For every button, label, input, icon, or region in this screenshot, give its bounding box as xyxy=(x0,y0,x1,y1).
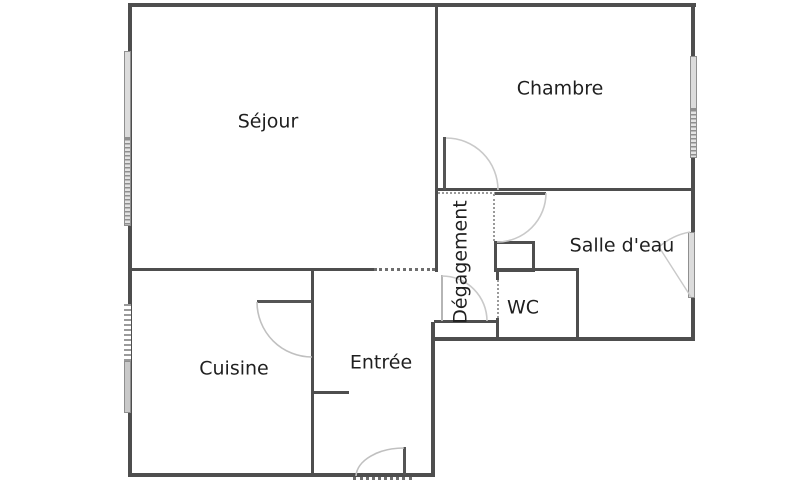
sejour-window-lower xyxy=(124,138,131,226)
sejour-cuisine-wall xyxy=(128,268,375,271)
sejour-chambre-wall xyxy=(435,3,438,272)
cuisine-door-arc xyxy=(257,302,312,357)
sejour-label: Séjour xyxy=(238,113,299,132)
cuisine-door-leaf xyxy=(257,300,312,303)
top-wall xyxy=(130,3,696,7)
degagement-label: Dégagement xyxy=(452,200,471,323)
entree-right-wall xyxy=(431,322,435,477)
entree-stub-wall xyxy=(311,391,349,394)
wc-label: WC xyxy=(507,299,539,318)
wc-left-wall-bottom xyxy=(496,318,499,340)
wc-door-opening xyxy=(497,280,499,318)
chambre-door-arc xyxy=(446,138,498,190)
sejour-entree-opening xyxy=(374,268,435,271)
sejour-window-upper xyxy=(124,51,131,138)
wc-left-wall-top xyxy=(496,268,499,280)
chambre-label: Chambre xyxy=(517,80,604,99)
front-door-leaf xyxy=(403,447,406,475)
chambre-door-threshold xyxy=(438,192,496,194)
wc-right-wall xyxy=(576,268,579,340)
lower-right-wall xyxy=(431,337,695,341)
floor-plan: Séjour Chambre Cuisine Entrée Salle d'ea… xyxy=(0,0,800,485)
chambre-window-upper xyxy=(690,56,697,109)
cuisine-label: Cuisine xyxy=(199,360,269,379)
chambre-salledeau-wall xyxy=(435,188,695,191)
chambre-door-leaf xyxy=(443,137,446,190)
entree-label: Entrée xyxy=(350,354,412,373)
degagement-door-leaf xyxy=(441,275,443,321)
cuisine-window-upper xyxy=(124,304,131,361)
cuisine-window-lower xyxy=(124,361,131,413)
chambre-window-lower xyxy=(690,109,697,158)
front-door-arc xyxy=(356,448,404,476)
wc-top-wall xyxy=(496,268,579,271)
salledeau-door-arc xyxy=(497,193,546,242)
salledeau-label: Salle d'eau xyxy=(570,237,675,256)
salledeau-door-leaf xyxy=(495,192,546,195)
degagement-salledeau-opening xyxy=(493,194,495,241)
door-arcs-layer xyxy=(0,0,800,485)
salledeau-window xyxy=(688,232,695,298)
front-door-threshold xyxy=(353,477,412,480)
